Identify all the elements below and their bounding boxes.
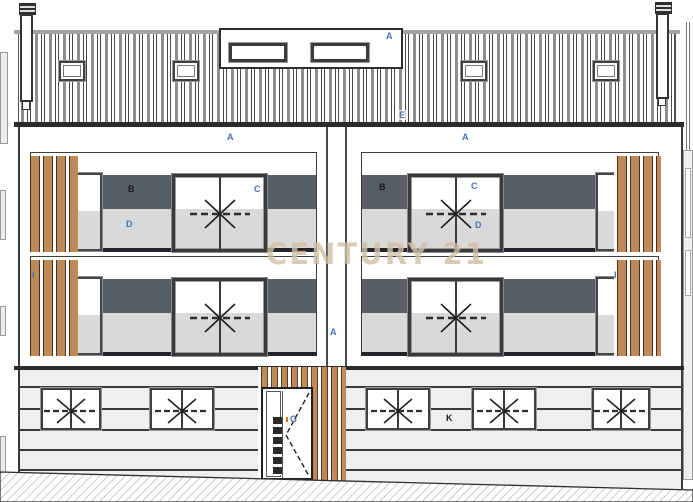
label-party-wall: A [330, 327, 337, 337]
ground-terrain-hatch [0, 465, 693, 502]
label-balcony-left-wall: B [128, 184, 135, 194]
label-entrance-door: G [290, 414, 297, 424]
background-strip-box [685, 168, 691, 238]
cladding-joint-line [19, 429, 681, 431]
label-balcony-right-wall: B [379, 182, 386, 192]
sliding-door [172, 278, 267, 356]
facade-edge-right [681, 127, 683, 489]
chimney [20, 14, 33, 102]
label-roof-eave: E [398, 110, 406, 120]
chimney-base [22, 101, 30, 110]
label-balcony-right-door: C [471, 181, 478, 191]
neighbor-wall-segment [0, 306, 6, 336]
roof-eave-line [14, 122, 684, 127]
roof-vent [461, 61, 487, 81]
elevation-drawing: A E A A A B C D B C D I I G K CENTURY 21 [0, 0, 693, 502]
ground-window [366, 388, 430, 430]
watermark: CENTURY 21 [266, 237, 487, 271]
ground-window [592, 388, 650, 430]
cladding-joint-line [19, 408, 681, 410]
label-slat-screen-right: I [614, 270, 617, 280]
sliding-door [408, 278, 503, 356]
background-pole [686, 22, 690, 150]
label-balcony-right-parapet: D [475, 220, 482, 230]
ground-window [41, 388, 101, 430]
label-balcony-left-door: C [254, 184, 261, 194]
opening-indicator-icon [424, 300, 488, 336]
facade-edge-left [18, 127, 20, 475]
ground-window [150, 388, 214, 430]
opening-indicator-icon [593, 396, 649, 426]
opening-indicator-icon [43, 396, 99, 426]
roof-vent [593, 61, 619, 81]
opening-indicator-icon [188, 300, 252, 336]
label-upper-wall-right: A [462, 132, 469, 142]
opening-indicator-icon [154, 396, 210, 426]
label-ground-wall: K [446, 413, 453, 423]
wood-slat-screen [27, 260, 78, 356]
dormer-window [311, 43, 369, 62]
ground-window [472, 388, 536, 430]
neighbor-wall-segment [0, 52, 8, 144]
chimney-base [658, 98, 666, 106]
sliding-door [172, 174, 267, 252]
dormer-window [229, 43, 287, 62]
cladding-joint-line [19, 449, 681, 451]
wood-slat-screen [27, 156, 78, 252]
roof-vent [59, 61, 85, 81]
cladding-joint-line [19, 386, 681, 388]
label-dormer: A [386, 31, 393, 41]
roof-vent [173, 61, 199, 81]
label-slat-screen-left: I [32, 270, 35, 280]
wood-slat-screen [614, 156, 661, 252]
opening-indicator-icon [188, 196, 252, 232]
chimney [656, 13, 669, 99]
ground-floor-slab-line [14, 366, 684, 370]
wood-slat-screen [614, 260, 661, 356]
label-balcony-left-parapet: D [126, 219, 133, 229]
opening-indicator-icon [476, 396, 532, 426]
opening-indicator-icon [370, 396, 426, 426]
background-strip-box [685, 250, 691, 296]
label-upper-wall-left: A [227, 132, 234, 142]
entrance-label-tick [286, 417, 288, 422]
neighbor-wall-segment [0, 190, 6, 240]
